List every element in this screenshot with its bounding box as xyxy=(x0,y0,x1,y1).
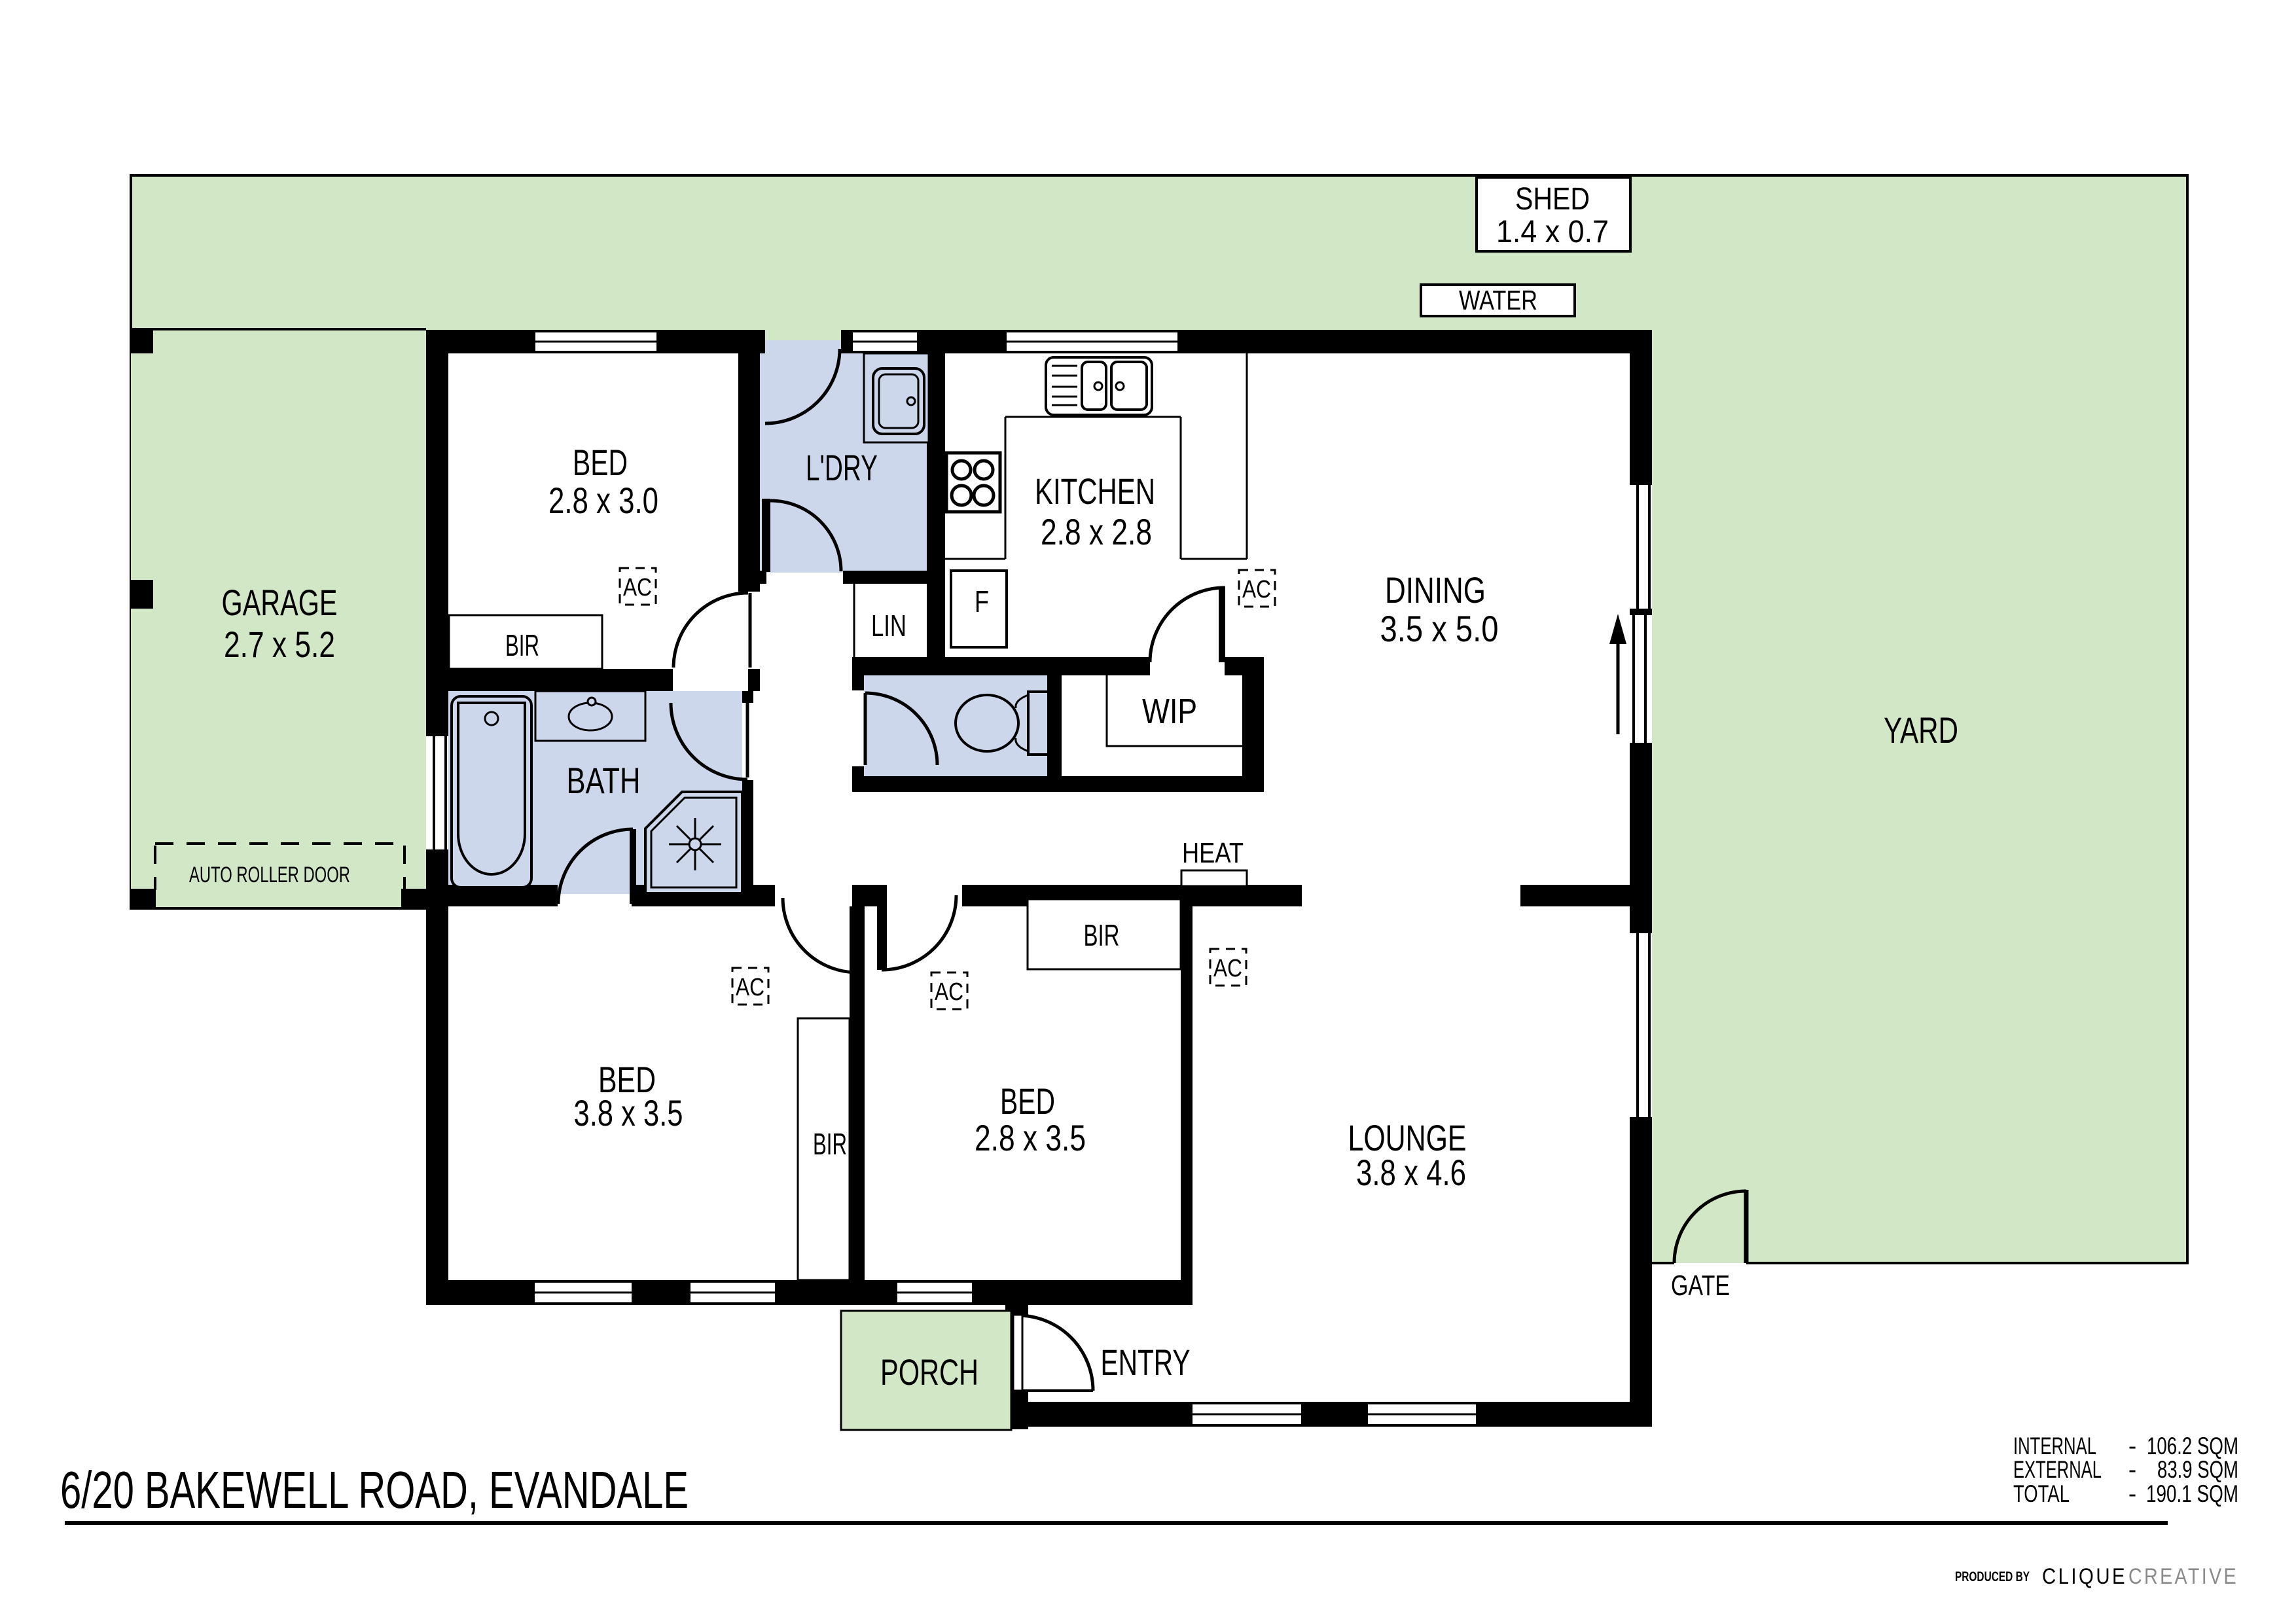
svg-text:106.2 SQM: 106.2 SQM xyxy=(2147,1433,2238,1459)
svg-text:AC: AC xyxy=(736,974,764,1001)
svg-text:2.7 x 5.2: 2.7 x 5.2 xyxy=(224,624,335,665)
svg-text:-: - xyxy=(2128,1456,2136,1483)
svg-text:L'DRY: L'DRY xyxy=(806,447,878,488)
svg-text:83.9 SQM: 83.9 SQM xyxy=(2157,1456,2238,1483)
svg-text:HEAT: HEAT xyxy=(1182,837,1244,869)
svg-text:2.8 x 2.8: 2.8 x 2.8 xyxy=(1041,511,1152,552)
svg-text:AUTO ROLLER DOOR: AUTO ROLLER DOOR xyxy=(189,863,350,887)
svg-text:190.1 SQM: 190.1 SQM xyxy=(2146,1480,2238,1507)
svg-text:GARAGE: GARAGE xyxy=(222,582,338,623)
svg-text:BIR: BIR xyxy=(1084,918,1120,952)
svg-text:DINING: DINING xyxy=(1385,569,1486,611)
svg-text:AC: AC xyxy=(1213,955,1242,982)
svg-text:LIN: LIN xyxy=(871,609,906,643)
svg-text:2.8 x 3.5: 2.8 x 3.5 xyxy=(975,1117,1086,1158)
svg-text:TOTAL: TOTAL xyxy=(2013,1480,2070,1507)
svg-text:YARD: YARD xyxy=(1884,709,1958,751)
svg-text:EXTERNAL: EXTERNAL xyxy=(2013,1456,2102,1483)
svg-text:3.5 x 5.0: 3.5 x 5.0 xyxy=(1380,608,1499,649)
svg-text:PORCH: PORCH xyxy=(880,1351,978,1393)
svg-text:PRODUCED BY: PRODUCED BY xyxy=(1955,1569,2030,1584)
svg-text:KITCHEN: KITCHEN xyxy=(1035,471,1155,512)
svg-text:BED: BED xyxy=(1000,1080,1055,1122)
svg-text:3.8 x 3.5: 3.8 x 3.5 xyxy=(574,1092,683,1133)
svg-text:-: - xyxy=(2128,1480,2136,1507)
svg-text:GATE: GATE xyxy=(1671,1270,1730,1302)
svg-text:WIP: WIP xyxy=(1142,692,1197,731)
svg-text:CREATIVE: CREATIVE xyxy=(2128,1564,2238,1589)
svg-text:AC: AC xyxy=(1242,576,1271,603)
svg-text:AC: AC xyxy=(623,574,652,601)
svg-text:1.4 x 0.7: 1.4 x 0.7 xyxy=(1496,215,1609,249)
svg-text:3.8 x 4.6: 3.8 x 4.6 xyxy=(1356,1152,1466,1193)
svg-text:SHED: SHED xyxy=(1515,182,1590,217)
svg-text:2.8 x 3.0: 2.8 x 3.0 xyxy=(548,480,658,521)
svg-text:WATER: WATER xyxy=(1459,285,1537,315)
svg-text:F: F xyxy=(975,584,989,618)
svg-text:BIR: BIR xyxy=(813,1127,847,1161)
svg-text:-: - xyxy=(2128,1433,2136,1459)
svg-text:INTERNAL: INTERNAL xyxy=(2013,1433,2096,1459)
svg-text:BIR: BIR xyxy=(505,628,539,662)
svg-text:BED: BED xyxy=(573,442,628,483)
svg-text:ENTRY: ENTRY xyxy=(1101,1342,1191,1383)
svg-text:BATH: BATH xyxy=(567,760,641,801)
svg-text:CLIQUE: CLIQUE xyxy=(2042,1564,2127,1589)
svg-text:AC: AC xyxy=(935,978,963,1006)
svg-text:6/20 BAKEWELL ROAD, EVANDALE: 6/20 BAKEWELL ROAD, EVANDALE xyxy=(60,1461,689,1519)
